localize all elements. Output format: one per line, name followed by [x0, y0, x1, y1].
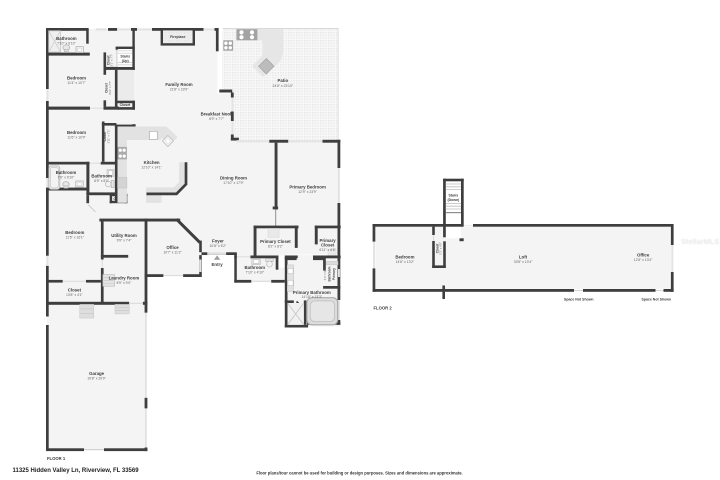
- svg-text:12'10" x 14'1": 12'10" x 14'1": [141, 166, 162, 170]
- svg-text:Closet: Closet: [120, 103, 132, 107]
- svg-text:Foyer: Foyer: [212, 238, 224, 243]
- svg-text:Bathroom: Bathroom: [245, 265, 266, 270]
- svg-text:Primary: Primary: [332, 268, 336, 280]
- svg-text:Bedroom: Bedroom: [395, 255, 414, 260]
- svg-text:8'2" x 8'2": 8'2" x 8'2": [268, 245, 284, 249]
- svg-text:Closet: Closet: [68, 288, 82, 293]
- svg-text:(Up): (Up): [122, 59, 129, 63]
- svg-text:3'11" x 7'7": 3'11" x 7'7": [108, 81, 112, 95]
- svg-text:Breakfast Nook: Breakfast Nook: [201, 111, 233, 116]
- svg-text:Office: Office: [637, 253, 650, 258]
- svg-text:Kitchen: Kitchen: [144, 160, 160, 165]
- svg-text:11325 Hidden Valley Ln, Riverv: 11325 Hidden Valley Ln, Riverview, FL 33…: [13, 468, 140, 474]
- svg-text:Family Room: Family Room: [165, 82, 192, 87]
- svg-text:11'6" x 10'9": 11'6" x 10'9": [67, 136, 86, 140]
- svg-text:Primary Closet: Primary Closet: [260, 239, 291, 244]
- svg-text:14'10" x 13'3": 14'10" x 13'3": [302, 295, 323, 299]
- svg-text:Dining Room: Dining Room: [220, 176, 247, 181]
- svg-text:Fireplace: Fireplace: [170, 35, 185, 39]
- svg-text:11'5" x 16'1": 11'5" x 16'1": [66, 236, 85, 240]
- svg-text:Bathroom: Bathroom: [328, 266, 332, 281]
- svg-text:3'1" x 7'7": 3'1" x 7'7": [110, 54, 114, 67]
- svg-text:7'10" x 4'10": 7'10" x 4'10": [245, 271, 264, 275]
- svg-text:10'8" x 5'2": 10'8" x 5'2": [210, 244, 228, 248]
- svg-text:Laundry Room: Laundry Room: [109, 276, 140, 281]
- svg-text:Utility Room: Utility Room: [111, 233, 137, 238]
- svg-text:Space Not Shown: Space Not Shown: [564, 298, 594, 302]
- svg-text:24'6" x 23'10": 24'6" x 23'10": [273, 84, 294, 88]
- svg-text:Space Not Shown: Space Not Shown: [642, 298, 672, 302]
- svg-text:Stairs: Stairs: [120, 55, 130, 59]
- svg-text:Bedroom: Bedroom: [67, 130, 86, 135]
- svg-text:8'9" x 9'0": 8'9" x 9'0": [116, 281, 132, 285]
- svg-text:Bedroom: Bedroom: [65, 230, 84, 235]
- svg-text:Floor plans/tour cannot be use: Floor plans/tour cannot be used for buil…: [256, 470, 462, 475]
- svg-text:12'9" x 23'9": 12'9" x 23'9": [298, 190, 317, 194]
- svg-text:Closet: Closet: [321, 243, 335, 248]
- svg-text:Garage: Garage: [89, 371, 105, 376]
- svg-text:5'1" x 4'5": 5'1" x 4'5": [439, 242, 443, 255]
- svg-text:Bathroom: Bathroom: [56, 170, 77, 175]
- svg-text:FLOOR 2: FLOOR 2: [374, 305, 393, 310]
- svg-text:3'11" x 7'2": 3'11" x 7'2": [107, 129, 111, 143]
- svg-text:13'8" x 4'1": 13'8" x 4'1": [66, 293, 84, 297]
- svg-text:Primary Bathroom: Primary Bathroom: [293, 290, 331, 295]
- svg-text:4'4" x 9'2": 4'4" x 9'2": [323, 268, 327, 281]
- svg-text:Bedroom: Bedroom: [67, 75, 86, 80]
- svg-text:7'6" x 6'10": 7'6" x 6'10": [58, 175, 76, 179]
- svg-text:Patio: Patio: [277, 78, 288, 83]
- svg-text:21'8" x 23'9": 21'8" x 23'9": [170, 88, 189, 92]
- svg-text:12'8" x 13'4": 12'8" x 13'4": [634, 258, 653, 262]
- svg-text:Primary Bedroom: Primary Bedroom: [289, 185, 326, 190]
- svg-text:19'8" x 29'9": 19'8" x 29'9": [87, 377, 106, 381]
- svg-text:17'10" x 17'9": 17'10" x 17'9": [223, 181, 244, 185]
- svg-text:10'7" x 11'2": 10'7" x 11'2": [163, 250, 182, 254]
- svg-text:Loft: Loft: [519, 255, 528, 260]
- svg-text:Entry: Entry: [212, 262, 224, 267]
- svg-text:8'9" x 7'7": 8'9" x 7'7": [209, 117, 225, 121]
- svg-text:Stairs: Stairs: [449, 193, 459, 197]
- svg-text:33'8" x 13'4": 33'8" x 13'4": [514, 260, 533, 264]
- svg-text:Bathroom: Bathroom: [56, 36, 77, 41]
- svg-text:6'11" x 6'6": 6'11" x 6'6": [319, 248, 336, 252]
- svg-text:9'9" x 7'4": 9'9" x 7'4": [117, 238, 133, 242]
- svg-text:8'5" x 8'0": 8'5" x 8'0": [94, 179, 110, 183]
- svg-text:StellarMLS: StellarMLS: [681, 237, 719, 246]
- svg-text:FLOOR 1: FLOOR 1: [47, 456, 66, 461]
- svg-text:14'8" x 13'2": 14'8" x 13'2": [396, 260, 415, 264]
- svg-text:Office: Office: [166, 245, 179, 250]
- svg-text:(Down): (Down): [447, 198, 459, 202]
- svg-text:Bathroom: Bathroom: [91, 174, 112, 179]
- svg-text:7'10" x 6'10": 7'10" x 6'10": [57, 42, 76, 46]
- svg-text:11'4" x 10'7": 11'4" x 10'7": [67, 81, 86, 85]
